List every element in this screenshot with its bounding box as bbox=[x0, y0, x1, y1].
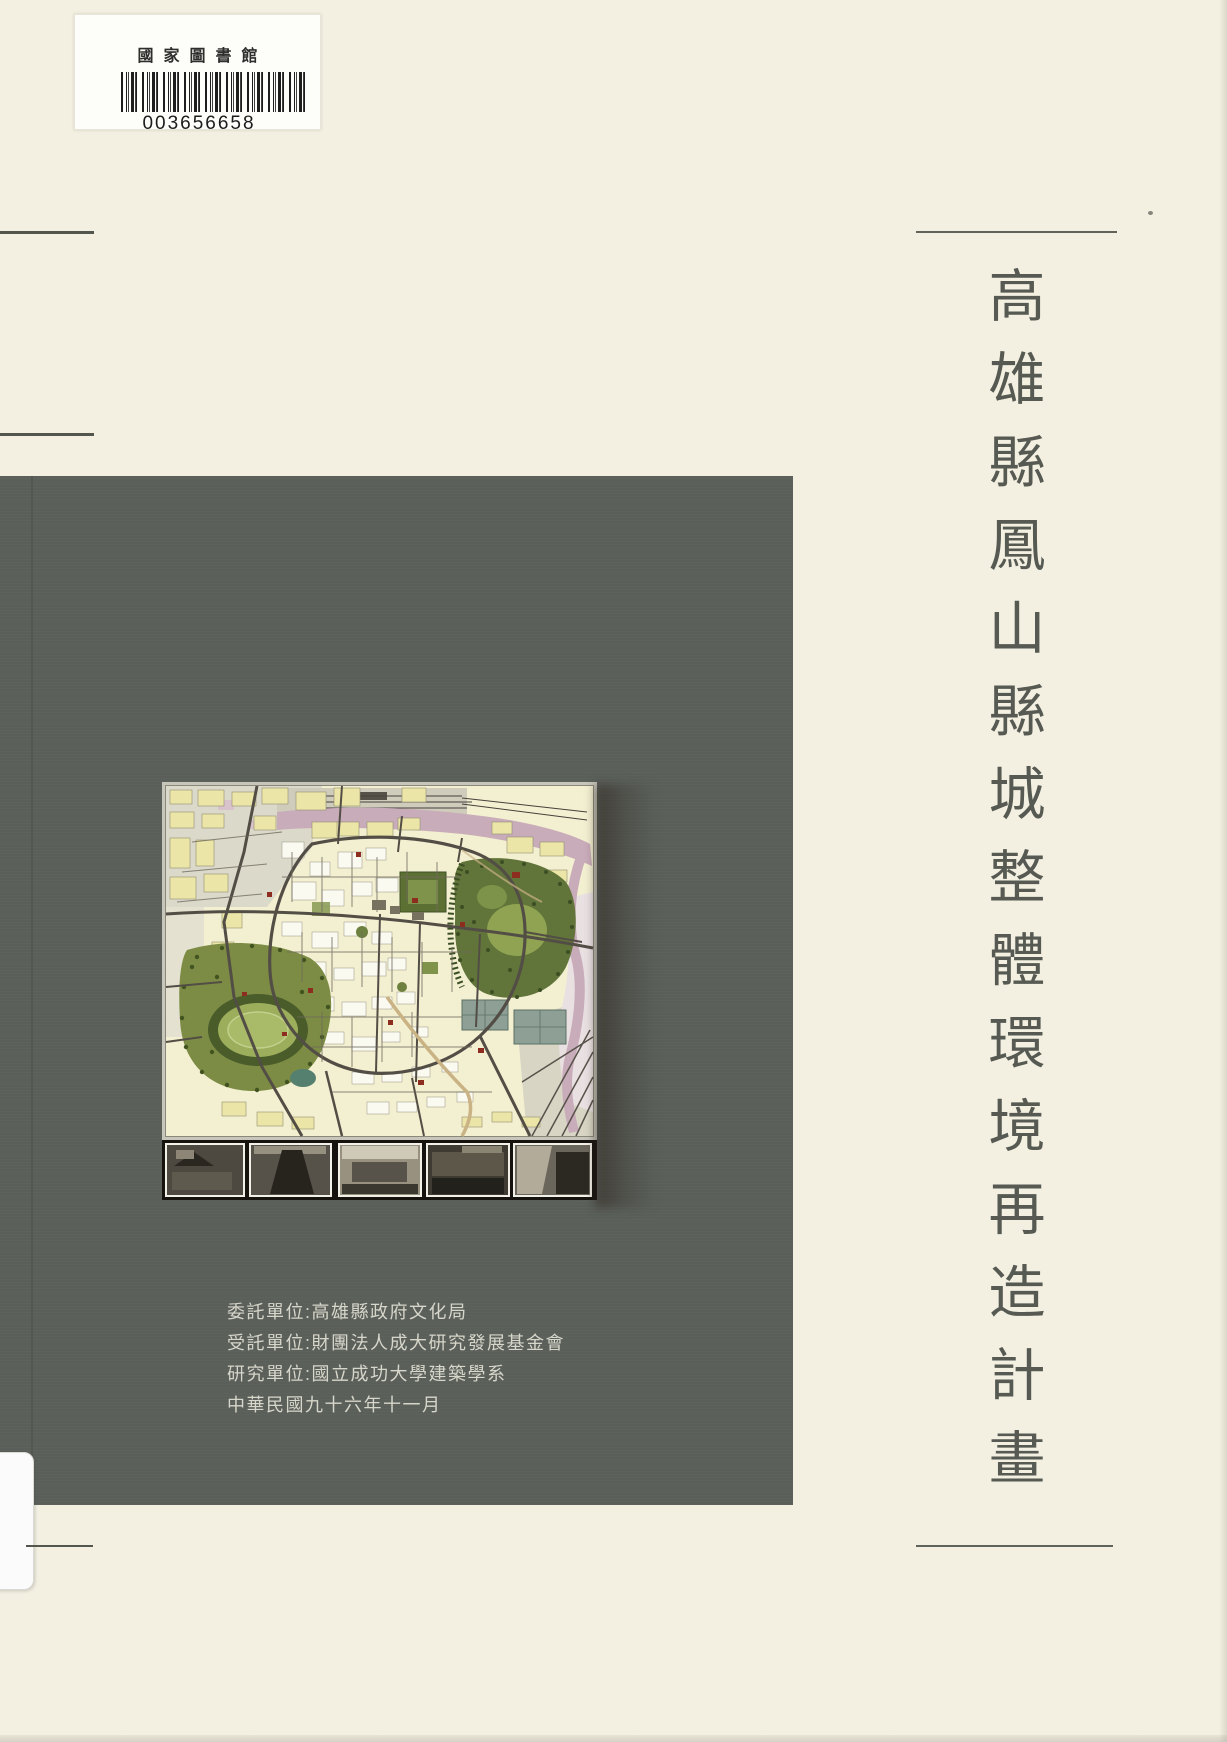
credits-block: 委託單位:高雄縣政府文化局 受託單位:財團法人成大研究發展基金會 研究單位:國立… bbox=[227, 1297, 565, 1421]
map-edge-shadow bbox=[595, 784, 657, 1208]
barcode-icon bbox=[121, 72, 309, 112]
library-name: 國家圖書館 bbox=[75, 42, 320, 66]
cover-title: 高雄縣鳳山縣城整體環境再造計畫 bbox=[981, 266, 1043, 1542]
barcode-number: 003656658 bbox=[105, 113, 293, 135]
city-plan-map-figure bbox=[162, 782, 597, 1200]
site-photo-2 bbox=[250, 1144, 331, 1196]
trim-mark-upper-left bbox=[0, 433, 94, 436]
credit-line-research-unit: 研究單位:國立成功大學建築學系 bbox=[227, 1359, 565, 1390]
title-rule-top bbox=[916, 231, 1117, 233]
book-cover-scan: { "page": { "background_color": "#f3f0e2… bbox=[0, 0, 1227, 1742]
site-photo-1 bbox=[166, 1144, 244, 1196]
fold-crease bbox=[31, 476, 33, 1505]
page-right-edge bbox=[1219, 0, 1227, 1742]
site-photo-5 bbox=[514, 1144, 591, 1196]
spine-sticker bbox=[0, 1452, 34, 1590]
photo-strip bbox=[162, 1140, 597, 1200]
trim-mark-bottom-left bbox=[26, 1545, 93, 1547]
title-rule-bottom bbox=[916, 1545, 1113, 1547]
site-photo-4 bbox=[427, 1144, 509, 1196]
library-barcode-label: 國家圖書館 003656658 bbox=[74, 14, 321, 130]
page-bottom-edge bbox=[0, 1735, 1227, 1742]
site-photo-3 bbox=[339, 1144, 421, 1196]
credit-line-trustee: 受託單位:財團法人成大研究發展基金會 bbox=[227, 1328, 565, 1359]
credit-line-date: 中華民國九十六年十一月 bbox=[227, 1390, 565, 1421]
paper-speck bbox=[1148, 211, 1153, 215]
credit-line-commissioner: 委託單位:高雄縣政府文化局 bbox=[227, 1297, 565, 1328]
trim-mark-top-left bbox=[0, 231, 94, 234]
